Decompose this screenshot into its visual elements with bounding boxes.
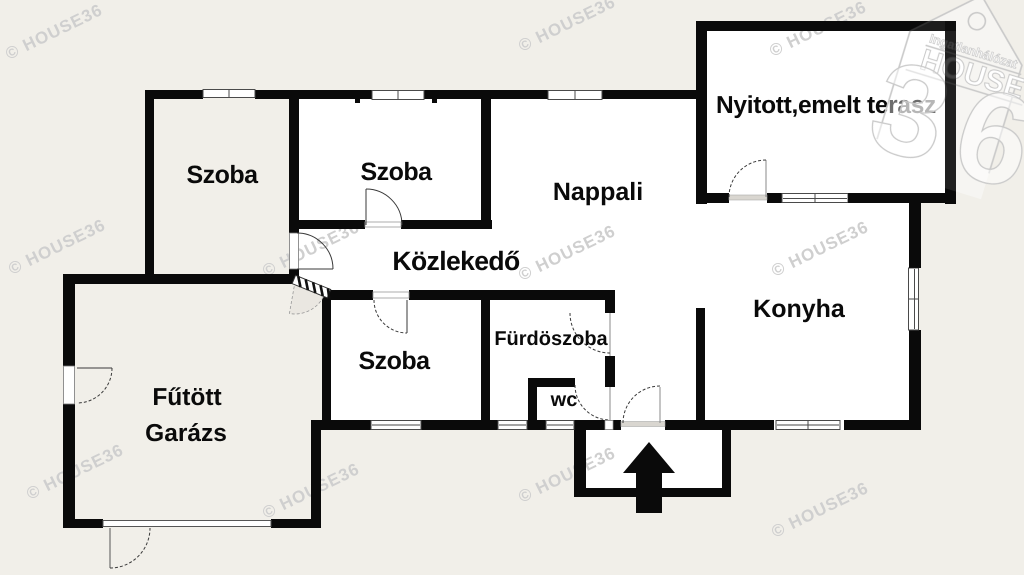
- svg-text:Szoba: Szoba: [186, 161, 259, 189]
- svg-text:Fűtött: Fűtött: [152, 384, 221, 411]
- svg-text:Nappali: Nappali: [553, 178, 643, 206]
- svg-text:Garázs: Garázs: [145, 420, 227, 447]
- svg-text:Fürdöszoba: Fürdöszoba: [494, 328, 608, 350]
- svg-text:wc: wc: [550, 389, 578, 411]
- svg-text:Közlekedő: Közlekedő: [392, 246, 520, 276]
- svg-text:Szoba: Szoba: [358, 347, 431, 375]
- svg-text:Konyha: Konyha: [753, 295, 846, 323]
- svg-text:Szoba: Szoba: [360, 158, 433, 186]
